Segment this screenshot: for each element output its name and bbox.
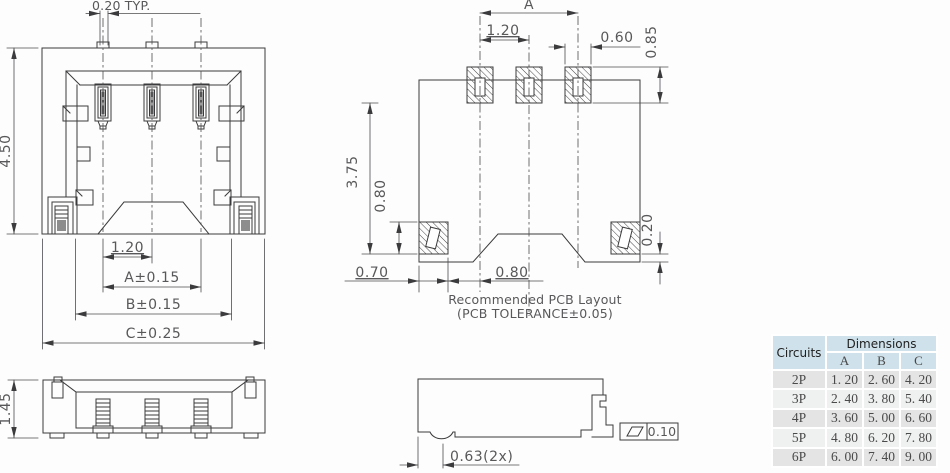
pcb-caption-line1: Recommended PCB Layout [448, 292, 622, 307]
dim-label-pcb-edge: 0.70 [355, 265, 388, 281]
dim-c-cell: 4. 20 [901, 371, 936, 388]
pcb-layout-drawing: A 1.20 0.60 0.85 3.75 0.80 [345, 0, 668, 321]
flatness-icon [627, 427, 643, 436]
dim-b-cell: 3. 80 [864, 390, 899, 407]
dim-c-cell: 5. 40 [901, 390, 936, 407]
dim-label-side-height: 1.45 [0, 392, 14, 425]
dim-c-cell: 9. 00 [901, 449, 936, 466]
side-view-drawing: 1.45 [0, 377, 265, 438]
dim-label-front-height: 4.50 [0, 134, 14, 167]
table-row-6p: 6P 6. 00 7. 40 9. 00 [773, 449, 936, 466]
dim-b-cell: 5. 00 [864, 410, 899, 427]
dim-b-cell: 2. 60 [864, 371, 899, 388]
flatness-callout: 0.10 [620, 423, 678, 440]
dim-label-side-pad-height: 0.80 [373, 179, 389, 212]
dim-a-cell: 3. 60 [827, 410, 862, 427]
dim-label-pcb-span: A [524, 0, 534, 13]
circuits-cell: 5P [773, 429, 825, 446]
dim-label-pad-width: 0.60 [600, 30, 633, 46]
dim-label-pin-width: 0.20 TYP. [92, 0, 150, 13]
circuits-cell: 6P [773, 449, 825, 466]
table-row-2p: 2P 1. 20 2. 60 4. 20 [773, 371, 936, 388]
dim-label-a: A±0.15 [124, 270, 179, 286]
dim-label-pcb-pitch: 1.20 [486, 23, 519, 39]
column-header-c: C [901, 353, 936, 369]
circuits-header: Circuits [773, 336, 825, 369]
dim-c-cell: 7. 80 [901, 429, 936, 446]
front-view-drawing: 0.20 TYP. 4.50 1.20 A±0.15 B±0.15 C±0.25 [0, 0, 265, 349]
dim-label-pad-offset: 0.20 [640, 213, 656, 246]
dim-label-foot: 0.63(2x) [450, 449, 513, 465]
dim-a-cell: 6. 00 [827, 449, 862, 466]
dim-label-front-pitch: 1.20 [111, 240, 144, 256]
dimensions-header: Dimensions [827, 336, 936, 351]
dim-c-cell: 6. 60 [901, 410, 936, 427]
connector-drawing-page: 0.20 TYP. 4.50 1.20 A±0.15 B±0.15 C±0.25 [0, 0, 950, 473]
dim-label-b: B±0.15 [126, 297, 182, 313]
dim-b-cell: 6. 20 [864, 429, 899, 446]
circuits-cell: 3P [773, 390, 825, 407]
column-header-a: A [827, 353, 862, 369]
table-row-5p: 5P 4. 80 6. 20 7. 80 [773, 429, 936, 446]
circuits-cell: 2P [773, 371, 825, 388]
dim-label-pcb-gap: 0.80 [495, 265, 528, 281]
table-row-3p: 3P 2. 40 3. 80 5. 40 [773, 390, 936, 407]
circuits-cell: 4P [773, 410, 825, 427]
dim-a-cell: 1. 20 [827, 371, 862, 388]
dim-a-cell: 4. 80 [827, 429, 862, 446]
profile-view-drawing: 0.10 0.63(2x) [400, 379, 678, 468]
dim-b-cell: 7. 40 [864, 449, 899, 466]
dim-label-c: C±0.25 [126, 326, 182, 342]
column-header-b: B [864, 353, 899, 369]
table-row-4p: 4P 3. 60 5. 00 6. 60 [773, 410, 936, 427]
dim-label-pcb-depth: 3.75 [345, 155, 361, 188]
flatness-value: 0.10 [648, 424, 677, 439]
pcb-caption-line2: (PCB TOLERANCE±0.05) [457, 306, 613, 321]
dim-label-pad-height: 0.85 [644, 25, 660, 58]
dimensions-table: Circuits Dimensions A B C 2P 1. 20 2. 60… [771, 334, 938, 468]
dim-a-cell: 2. 40 [827, 390, 862, 407]
